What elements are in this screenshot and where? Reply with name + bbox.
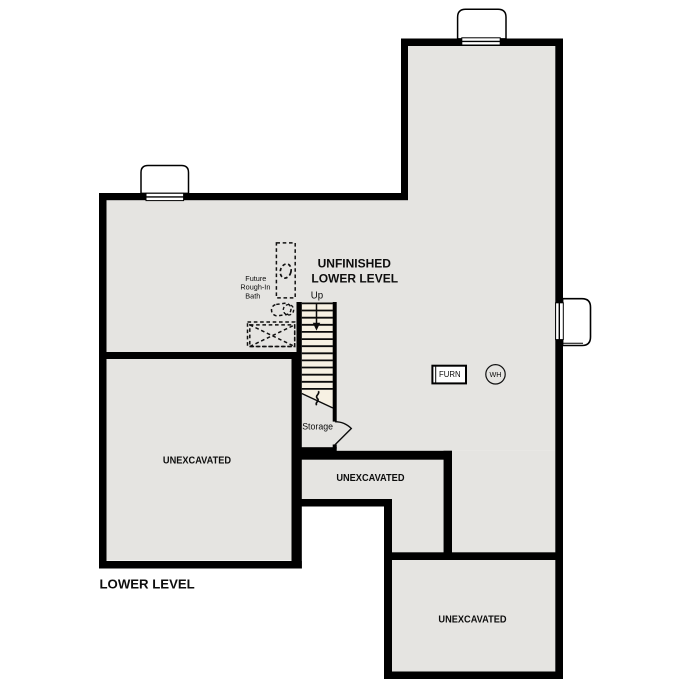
svg-text:WH: WH xyxy=(490,370,502,379)
svg-text:LOWER LEVEL: LOWER LEVEL xyxy=(100,577,195,592)
svg-text:LOWER LEVEL: LOWER LEVEL xyxy=(311,272,398,286)
svg-text:Future: Future xyxy=(245,274,266,283)
svg-text:UNEXCAVATED: UNEXCAVATED xyxy=(336,472,404,484)
svg-text:UNEXCAVATED: UNEXCAVATED xyxy=(163,455,231,467)
svg-text:Rough-In: Rough-In xyxy=(240,283,270,292)
svg-text:Up: Up xyxy=(311,290,323,301)
svg-text:Storage: Storage xyxy=(302,422,333,432)
svg-text:UNEXCAVATED: UNEXCAVATED xyxy=(438,614,506,626)
svg-text:UNFINISHED: UNFINISHED xyxy=(318,256,392,270)
svg-text:FURN: FURN xyxy=(439,370,461,379)
svg-text:Bath: Bath xyxy=(245,292,260,301)
